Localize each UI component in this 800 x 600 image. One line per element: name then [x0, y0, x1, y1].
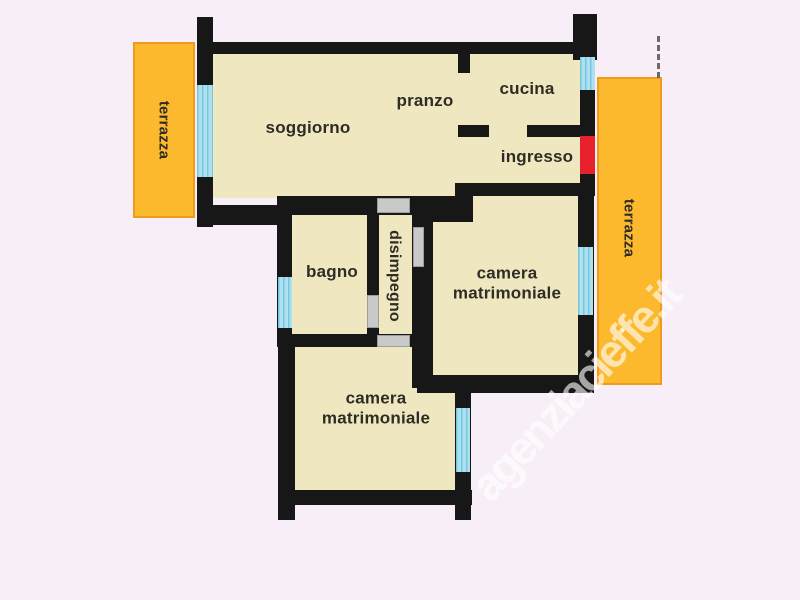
- window-bedroom-right: [578, 247, 593, 315]
- label-ingresso: ingresso: [501, 147, 573, 167]
- entrance-door: [580, 136, 595, 174]
- label-pranzo: pranzo: [397, 91, 454, 111]
- wall-top: [197, 42, 597, 54]
- wall-ingresso-bottom: [455, 183, 595, 196]
- door-bedroom-right: [413, 227, 424, 267]
- wall-stub-pranzo-cucina: [458, 52, 470, 73]
- label-bedroom-bottom: camera matrimoniale: [322, 388, 430, 427]
- window-soggiorno: [197, 85, 213, 177]
- wall-bedroom-bottom-left: [278, 345, 295, 520]
- door-disimpegno-top: [377, 198, 410, 213]
- label-terrazza-left: terrazza: [155, 101, 172, 159]
- label-disimpegno: disimpegno: [385, 230, 403, 322]
- wall-cucina-ingresso-left: [458, 125, 489, 137]
- floor-plan: soggiorno pranzo cucina ingresso bagno d…: [0, 0, 800, 600]
- window-bagno: [278, 277, 292, 328]
- label-terrazza-right: terrazza: [620, 199, 637, 257]
- window-cucina: [580, 57, 595, 90]
- window-bedroom-bottom: [456, 408, 470, 472]
- label-soggiorno: soggiorno: [266, 118, 351, 138]
- terrace-railing-dashes: [657, 36, 660, 78]
- door-disimpegno-bottom: [377, 335, 410, 347]
- door-bagno: [367, 295, 379, 328]
- label-bedroom-right-line1: camera: [453, 263, 561, 283]
- wall-bedroom-right-bottom: [417, 375, 593, 393]
- wall-cucina-ingresso-right: [527, 125, 580, 137]
- label-cucina: cucina: [499, 79, 554, 99]
- label-bedroom-bottom-line1: camera: [322, 388, 430, 408]
- label-bagno: bagno: [306, 262, 358, 282]
- wall-soggiorno-left-corner: [197, 177, 213, 227]
- label-bedroom-right-line2: matrimoniale: [453, 283, 561, 303]
- room-living-dining-area: [205, 48, 588, 198]
- wall-bedroom-bottom-bottom: [278, 490, 472, 505]
- label-bedroom-bottom-line2: matrimoniale: [322, 408, 430, 428]
- label-bedroom-right: camera matrimoniale: [453, 263, 561, 302]
